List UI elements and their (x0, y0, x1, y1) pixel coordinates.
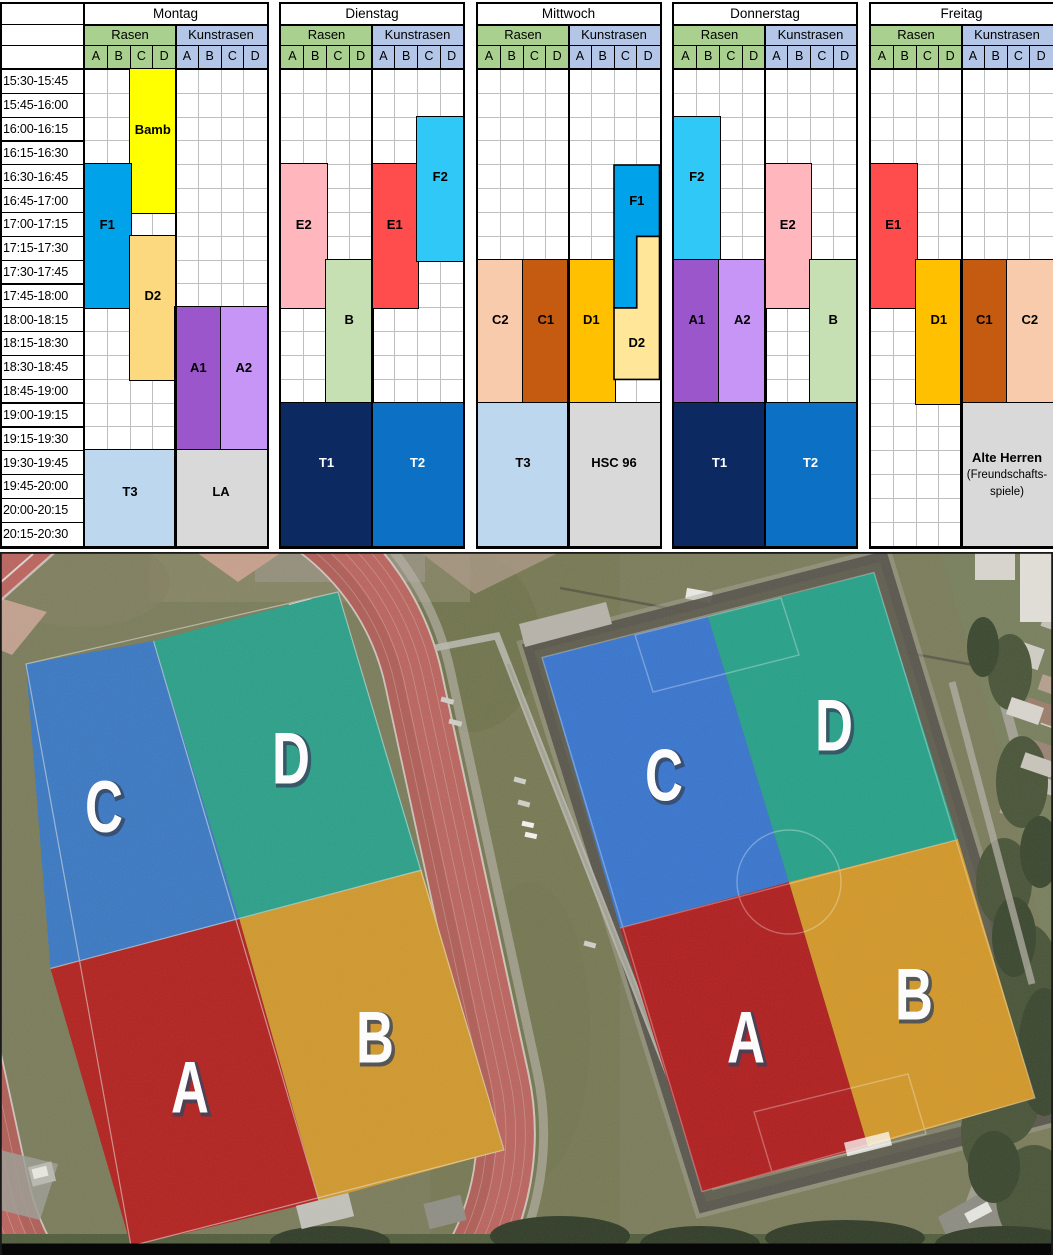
svg-text:F1: F1 (629, 193, 644, 208)
svg-text:D2: D2 (628, 335, 645, 350)
